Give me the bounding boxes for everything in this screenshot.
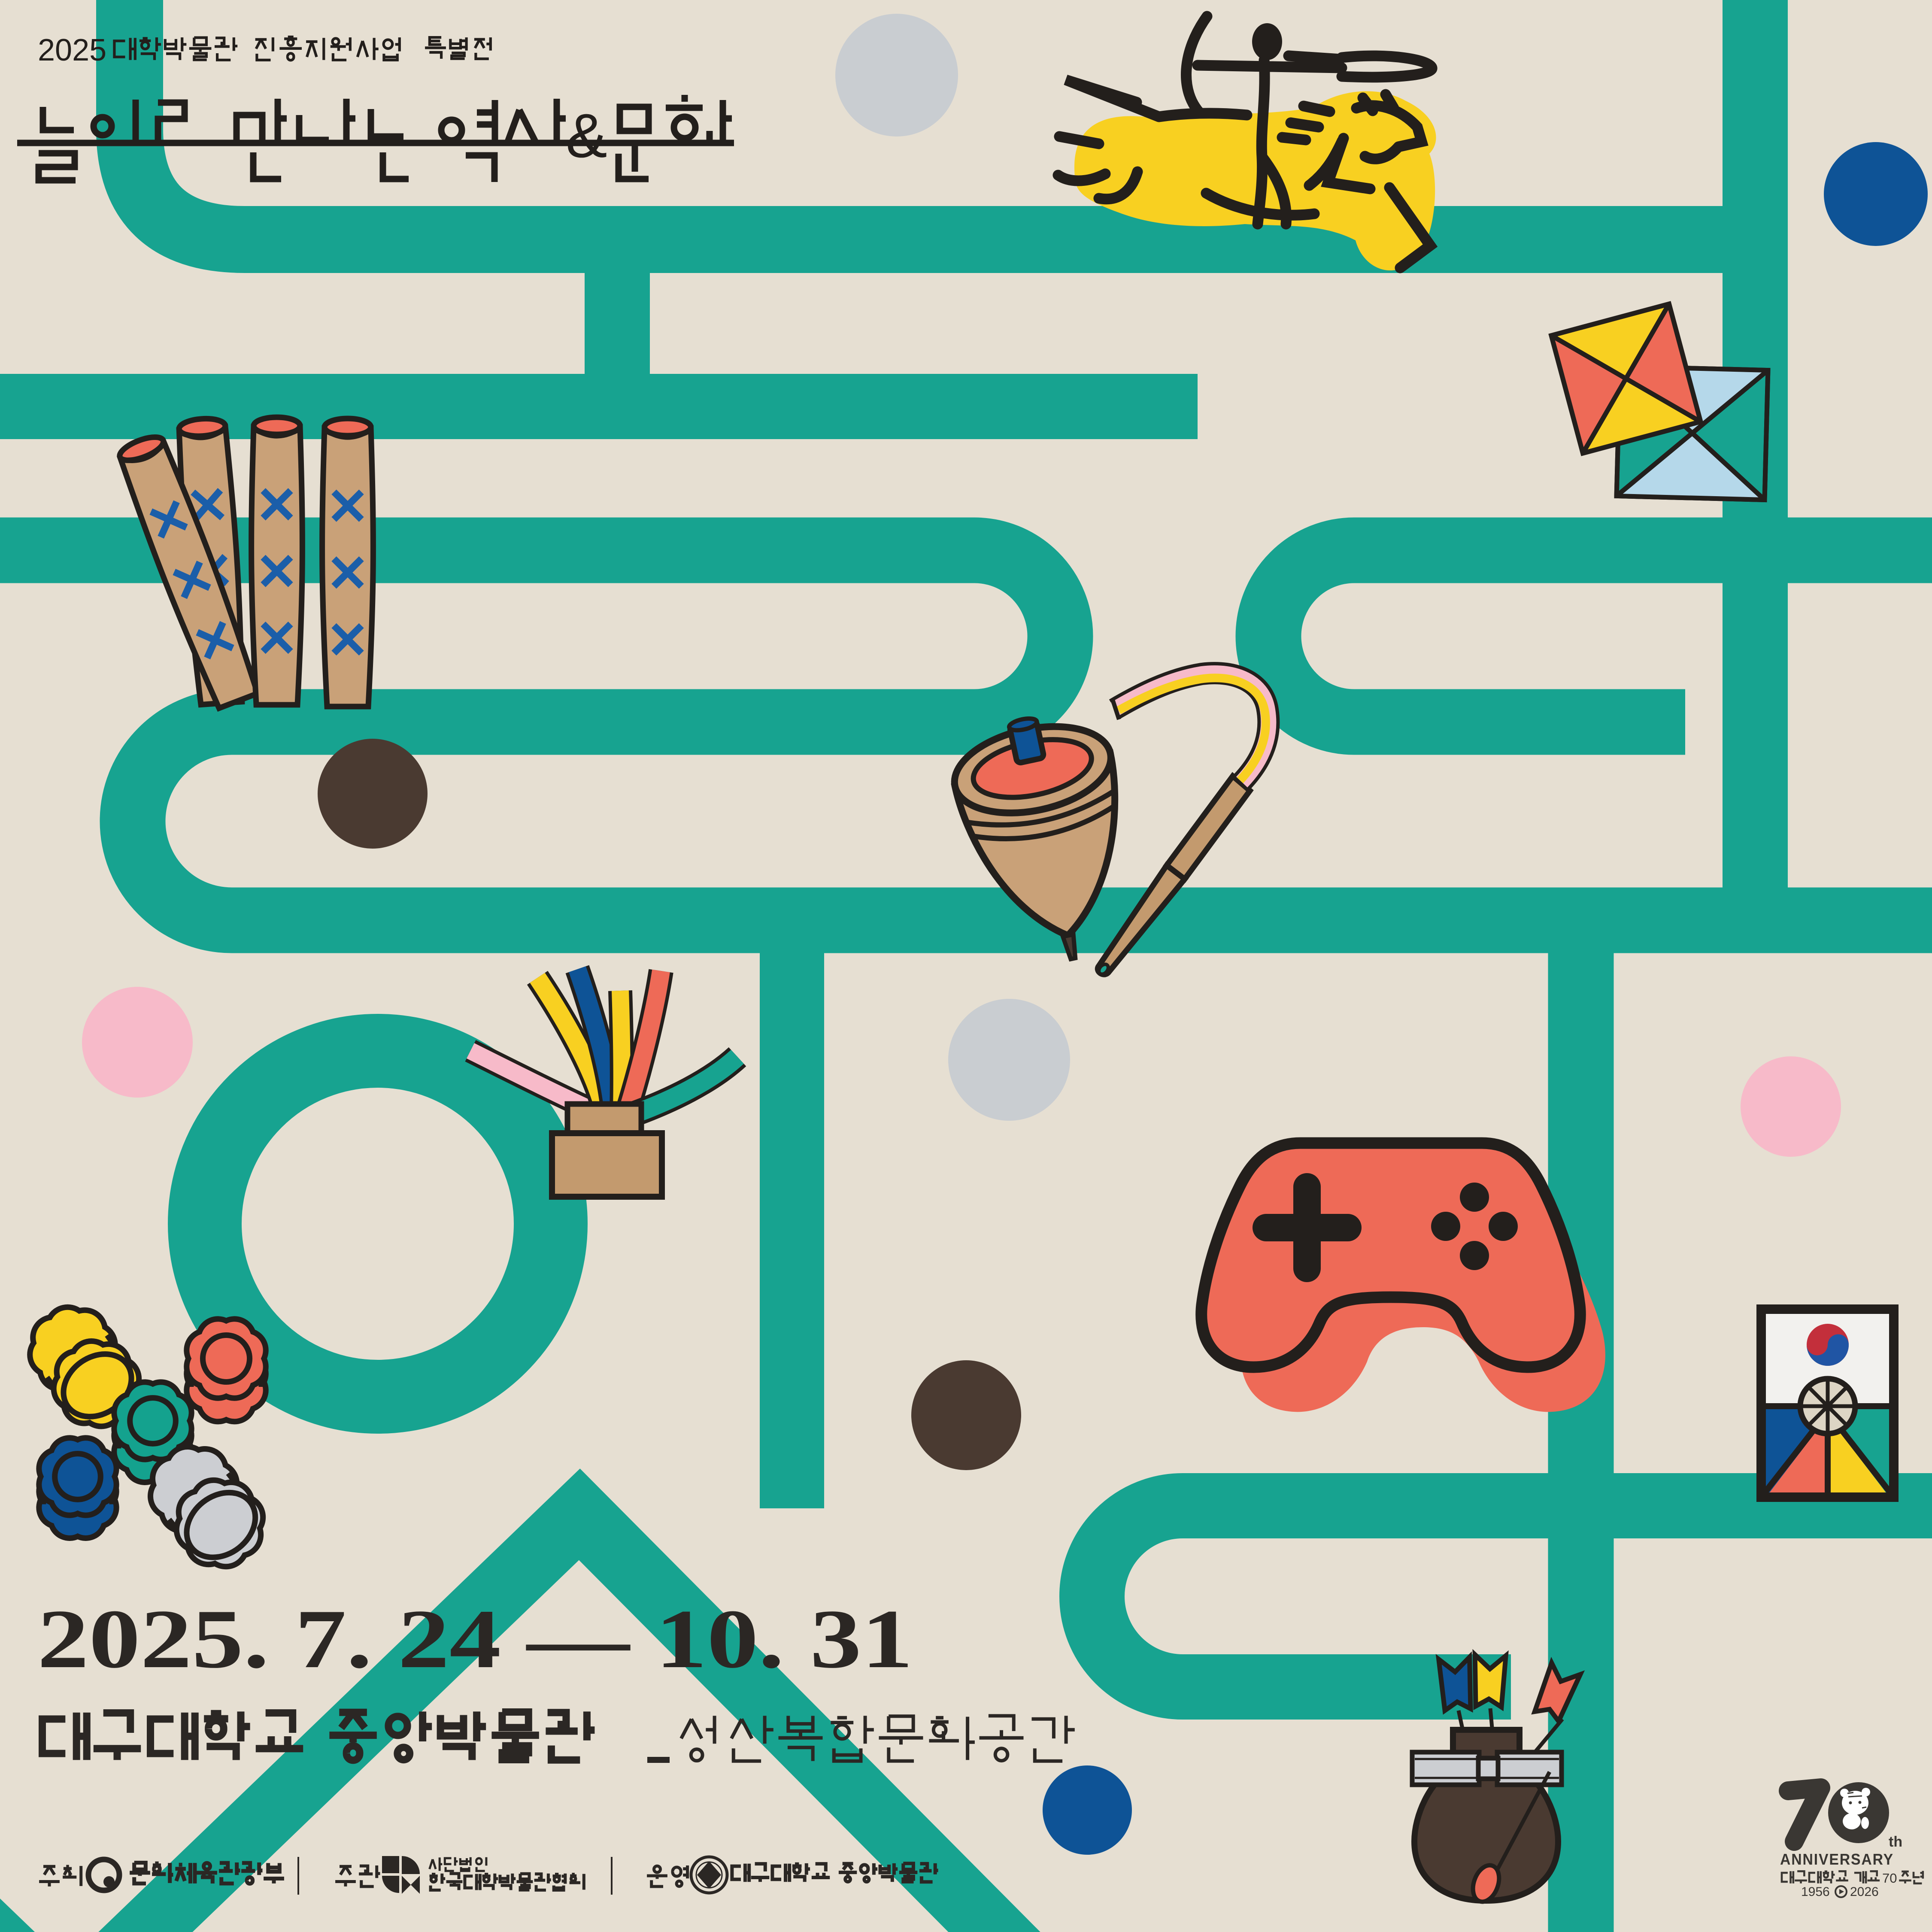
svg-text:2026: 2026: [1850, 1885, 1879, 1899]
svg-text:1956: 1956: [1801, 1885, 1830, 1899]
svg-text:70: 70: [1882, 1871, 1897, 1886]
svg-text:&: &: [566, 101, 607, 170]
svg-text:th: th: [1889, 1834, 1902, 1850]
svg-text:2025. 7. 24 — 10. 31: 2025. 7. 24 — 10. 31: [37, 1592, 913, 1686]
svg-text:2025: 2025: [38, 33, 106, 67]
svg-text:ANNIVERSARY: ANNIVERSARY: [1780, 1850, 1894, 1868]
